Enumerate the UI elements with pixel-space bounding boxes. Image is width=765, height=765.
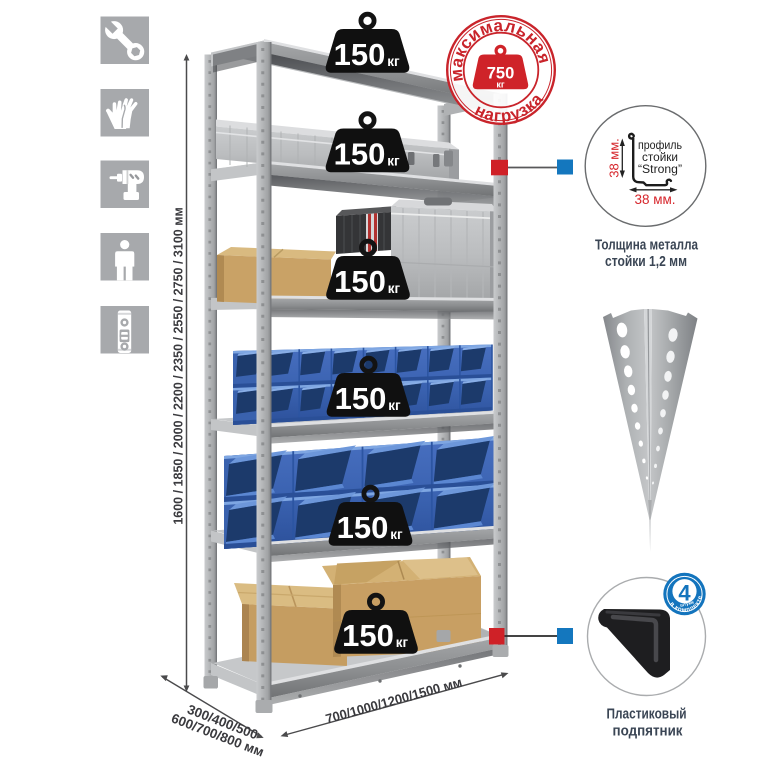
svg-text:38 мм.: 38 мм. — [607, 138, 622, 178]
svg-text:Толщина металла: Толщина металла — [595, 237, 699, 254]
svg-text:стойки 1,2 мм: стойки 1,2 мм — [605, 253, 687, 270]
svg-text:подпятник: подпятник — [613, 723, 683, 740]
svg-text:“Strong”: “Strong” — [638, 162, 682, 176]
svg-text:Пластиковый: Пластиковый — [607, 706, 687, 723]
svg-text:1600 / 1850 / 2000 / 2200 / 23: 1600 / 1850 / 2000 / 2200 / 2350 / 2550 … — [172, 207, 186, 524]
svg-text:38 мм.: 38 мм. — [634, 192, 675, 207]
svg-text:кг: кг — [496, 80, 505, 90]
